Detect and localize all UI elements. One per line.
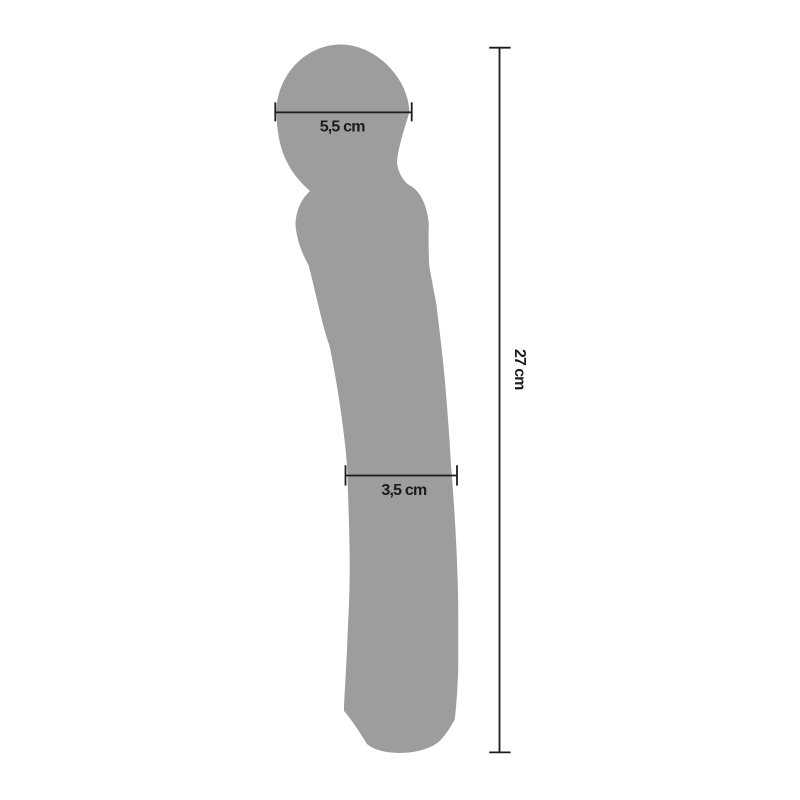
svg-text:27 cm: 27 cm xyxy=(511,349,528,390)
svg-text:3,5 cm: 3,5 cm xyxy=(381,482,427,499)
svg-text:5,5 cm: 5,5 cm xyxy=(320,118,366,135)
